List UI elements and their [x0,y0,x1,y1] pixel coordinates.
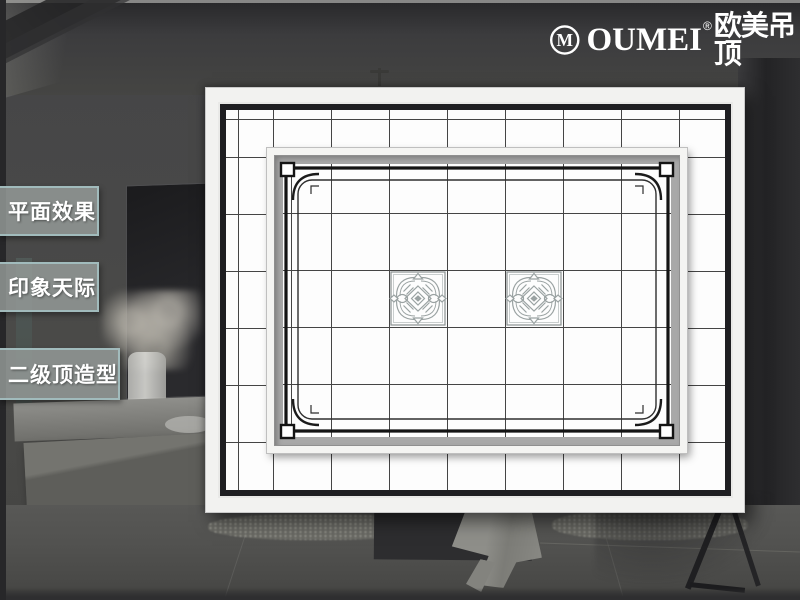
brand-mark-icon: M [548,19,582,61]
brand-name-chinese: 欧美吊顶 [714,12,800,68]
brand-name: OUMEI [587,24,703,57]
ceiling-plan [205,87,745,513]
brand-logo: M OUMEI ® 欧美吊顶 [548,17,800,63]
nav-button-impression-sky[interactable]: 印象天际 [0,262,99,312]
bg-bottom-shadow [0,588,800,600]
pattern-tile-2 [505,270,563,327]
slide-canvas: M OUMEI ® 欧美吊顶 平面效果 印象天际 二级顶造型 [0,0,800,600]
bg-ceiling-lamp-stem [378,68,381,86]
svg-text:M: M [556,30,573,50]
decorative-border [267,148,687,453]
nav-button-secondary-ceiling[interactable]: 二级顶造型 [0,348,120,400]
recessed-panel [267,148,687,453]
pattern-tile-1 [389,270,447,327]
registered-mark: ® [703,20,712,32]
nav-button-plan-effect[interactable]: 平面效果 [0,186,99,236]
